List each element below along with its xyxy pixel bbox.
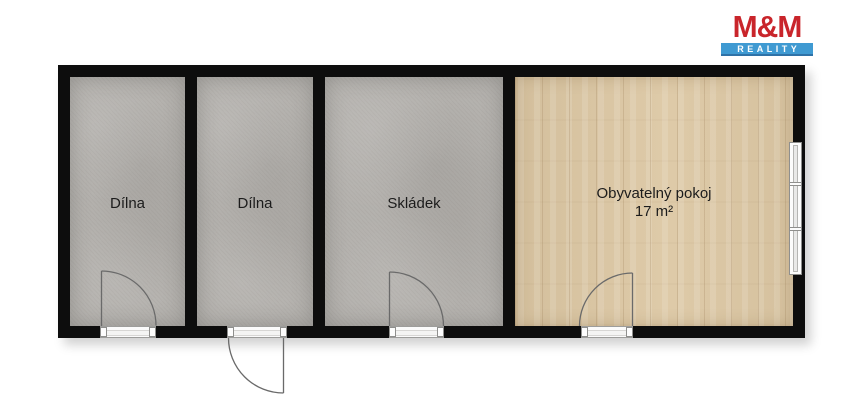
door-2-arc: [229, 338, 284, 393]
room-label: Skládek: [387, 195, 440, 213]
room-label: Dílna: [237, 195, 272, 213]
logo-reality-bar: REALITY: [721, 43, 813, 56]
door-threshold-2: [227, 326, 287, 338]
room-label: Dílna: [110, 195, 145, 213]
room-skladek: Skládek: [325, 77, 503, 326]
door-threshold-3: [389, 326, 444, 338]
window-muntin: [790, 182, 801, 186]
door-threshold-1: [100, 326, 156, 338]
room-dilna-2: Dílna: [197, 77, 313, 326]
logo-mm-text: M&M: [721, 13, 813, 44]
window-muntin: [790, 227, 801, 231]
window-glass: [793, 145, 798, 272]
room-obyvatelny-pokoj: Obyvatelný pokoj 17 m²: [515, 77, 793, 326]
brand-logo: M&M REALITY: [721, 13, 813, 56]
room-label: Obyvatelný pokoj 17 m²: [596, 185, 711, 221]
floorplan: Dílna Dílna Skládek Obyvatelný pokoj 17 …: [58, 65, 805, 338]
door-threshold-4: [581, 326, 633, 338]
room-dilna-1: Dílna: [70, 77, 185, 326]
room-name: Obyvatelný pokoj: [596, 185, 711, 202]
window: [789, 142, 802, 275]
room-area: 17 m²: [635, 203, 673, 220]
floorplan-canvas: M&M REALITY Dílna Dílna Skládek Obyvatel…: [0, 0, 863, 404]
